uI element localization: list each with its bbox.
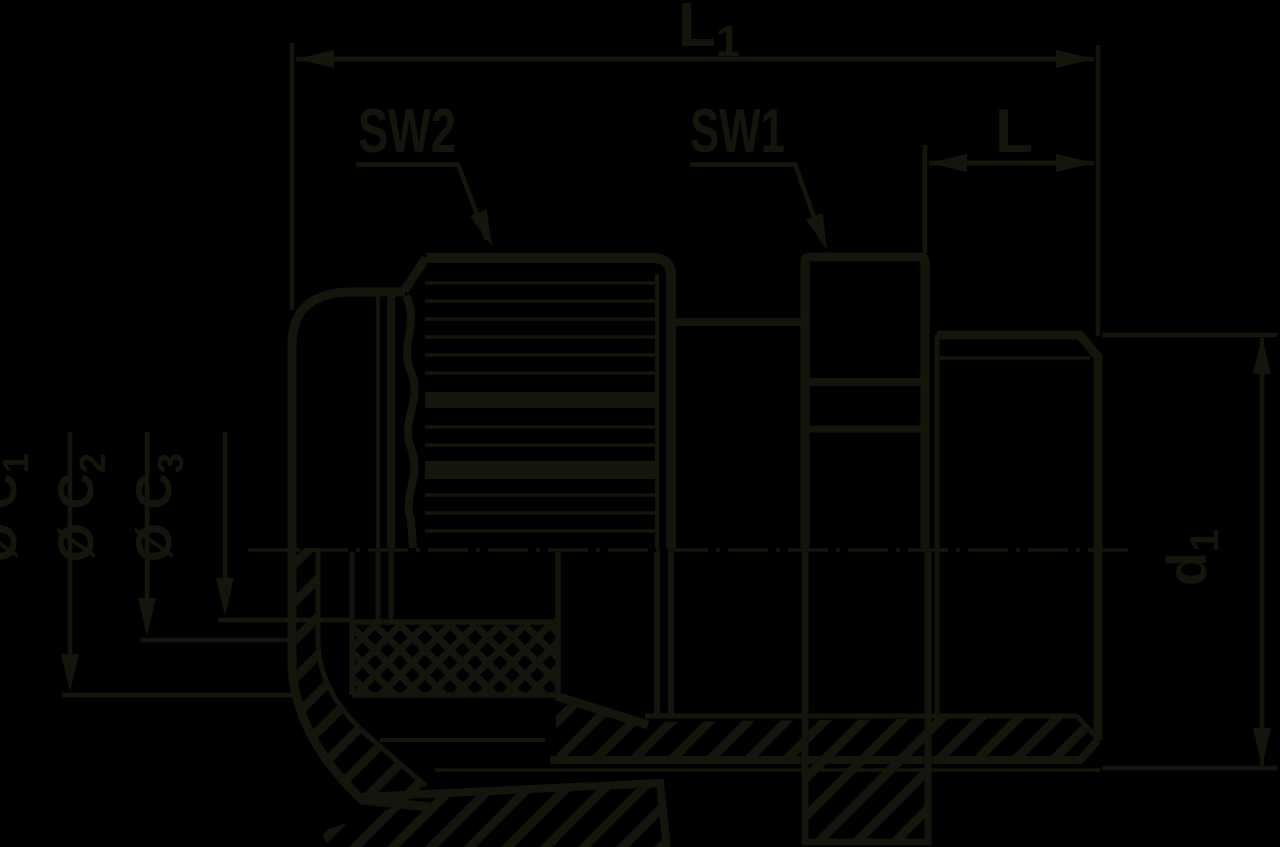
cable-gland-section-drawing: L1 L SW2 SW1 Ø C1 Ø C2 Ø C3 bbox=[0, 0, 1280, 847]
knurl-band-2 bbox=[425, 461, 657, 479]
sw1-label: SW1 bbox=[690, 97, 785, 166]
hex-block-hatch bbox=[805, 758, 928, 842]
l-label: L bbox=[995, 97, 1033, 166]
knurl-band-1 bbox=[425, 392, 657, 408]
seal-crosshatch bbox=[352, 622, 558, 695]
technical-drawing-canvas: L1 L SW2 SW1 Ø C1 Ø C2 Ø C3 bbox=[0, 0, 1280, 847]
sw2-label: SW2 bbox=[358, 97, 456, 166]
